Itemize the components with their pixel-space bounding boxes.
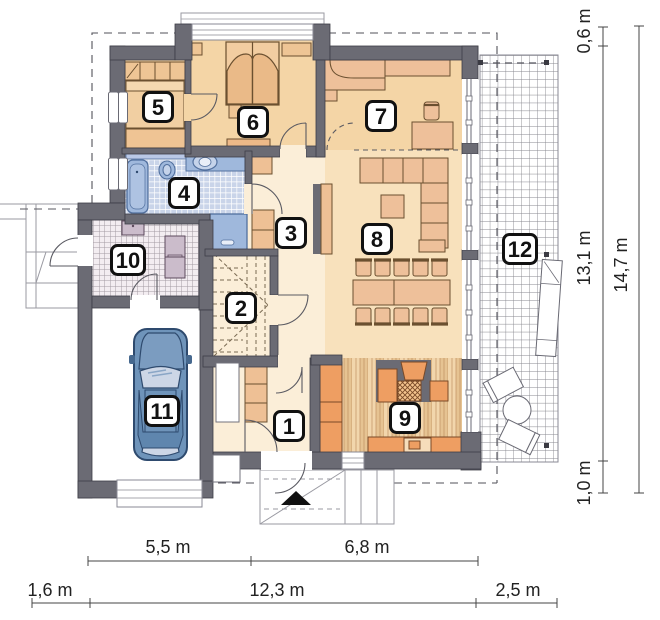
svg-text:4: 4 xyxy=(178,181,191,206)
svg-text:5,5 m: 5,5 m xyxy=(145,537,190,557)
svg-text:2: 2 xyxy=(235,296,247,321)
svg-text:1,6 m: 1,6 m xyxy=(27,580,72,600)
svg-text:2,5 m: 2,5 m xyxy=(495,580,540,600)
svg-text:5: 5 xyxy=(152,95,164,120)
svg-text:14,7 m: 14,7 m xyxy=(611,237,631,292)
svg-text:12: 12 xyxy=(508,237,532,262)
svg-text:8: 8 xyxy=(371,227,383,252)
svg-text:0,6 m: 0,6 m xyxy=(574,8,594,53)
svg-text:1: 1 xyxy=(283,414,295,439)
svg-text:1,0 m: 1,0 m xyxy=(574,460,594,505)
svg-text:13,1 m: 13,1 m xyxy=(574,230,594,285)
svg-text:6,8 m: 6,8 m xyxy=(344,537,389,557)
svg-text:10: 10 xyxy=(116,248,140,273)
svg-text:12,3 m: 12,3 m xyxy=(249,580,304,600)
svg-text:11: 11 xyxy=(150,399,173,424)
svg-text:7: 7 xyxy=(375,104,387,129)
svg-text:6: 6 xyxy=(247,110,259,135)
svg-text:3: 3 xyxy=(285,221,297,246)
svg-text:9: 9 xyxy=(399,406,411,431)
